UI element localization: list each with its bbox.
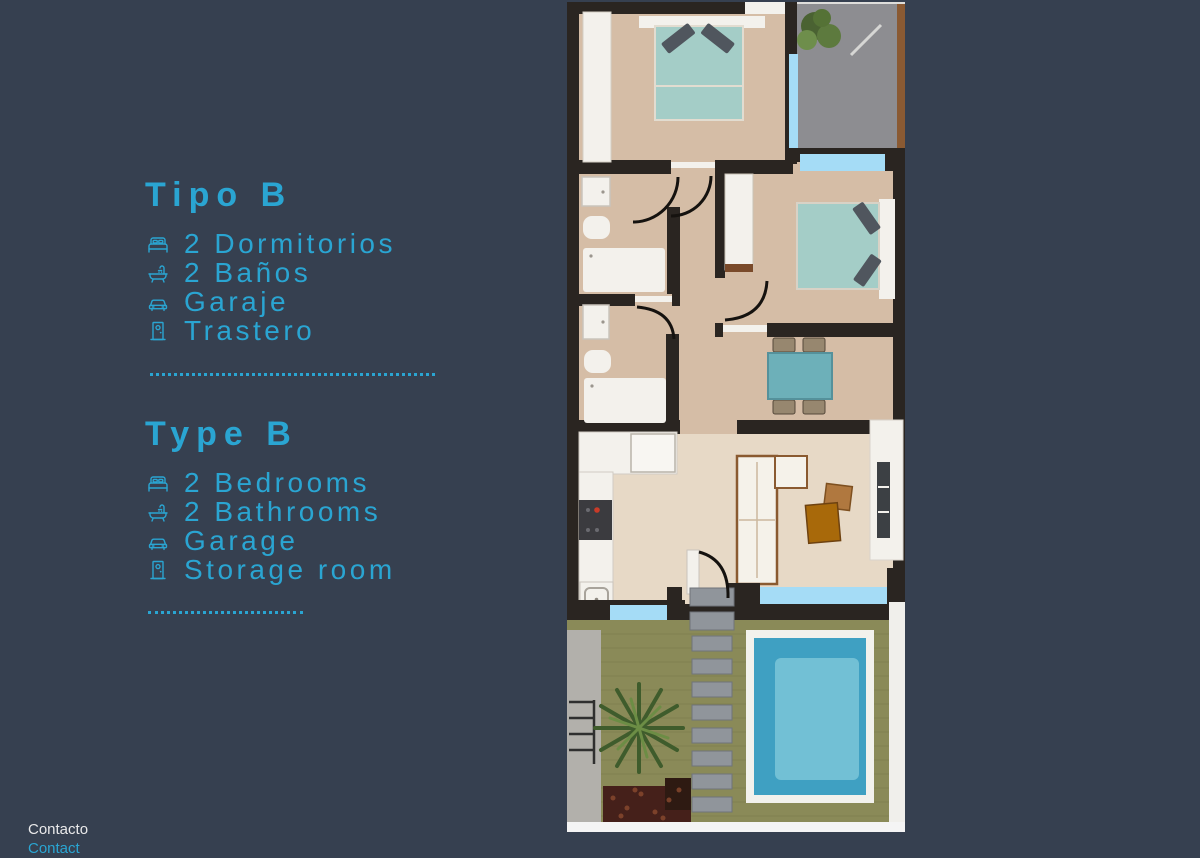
divider-dotted-en <box>148 611 303 614</box>
feature-garaje: Garaje <box>145 287 396 316</box>
bath-icon <box>145 260 171 286</box>
feature-label: 2 Baños <box>184 259 311 287</box>
door-icon <box>145 557 171 583</box>
feature-bedrooms: 2 Bedrooms <box>145 468 396 497</box>
section-title-en: Type B <box>145 415 396 454</box>
feature-label: Garaje <box>184 288 289 316</box>
bed-icon <box>145 231 171 257</box>
feature-trastero: Trastero <box>145 316 396 345</box>
feature-label: 2 Dormitorios <box>184 230 396 258</box>
feature-bathrooms: 2 Bathrooms <box>145 497 396 526</box>
feature-garage: Garage <box>145 526 396 555</box>
feature-storage-room: Storage room <box>145 555 396 584</box>
feature-label: Storage room <box>184 556 396 584</box>
feature-label: Garage <box>184 527 298 555</box>
contact-link-en[interactable]: Contact <box>28 839 88 858</box>
bed-icon <box>145 470 171 496</box>
section-title-es: Tipo B <box>145 176 396 215</box>
feature-label: Trastero <box>184 317 315 345</box>
car-icon <box>145 528 171 554</box>
section-tipo-b: Tipo B 2 Dormitorios 2 Baños Garaje Tras… <box>145 176 396 345</box>
divider-dotted-es <box>150 373 435 376</box>
feature-list-en: 2 Bedrooms 2 Bathrooms Garage Storage ro… <box>145 468 396 584</box>
car-icon <box>145 289 171 315</box>
feature-list-es: 2 Dormitorios 2 Baños Garaje Trastero <box>145 229 396 345</box>
contact-link-es[interactable]: Contacto <box>28 820 88 839</box>
bath-icon <box>145 499 171 525</box>
contact-links: Contacto Contact <box>28 820 88 858</box>
section-type-b: Type B 2 Bedrooms 2 Bathrooms Garage Sto… <box>145 415 396 584</box>
feature-banos: 2 Baños <box>145 258 396 287</box>
floor-plan <box>567 2 905 832</box>
feature-dormitorios: 2 Dormitorios <box>145 229 396 258</box>
feature-label: 2 Bedrooms <box>184 469 370 497</box>
door-icon <box>145 318 171 344</box>
feature-label: 2 Bathrooms <box>184 498 381 526</box>
